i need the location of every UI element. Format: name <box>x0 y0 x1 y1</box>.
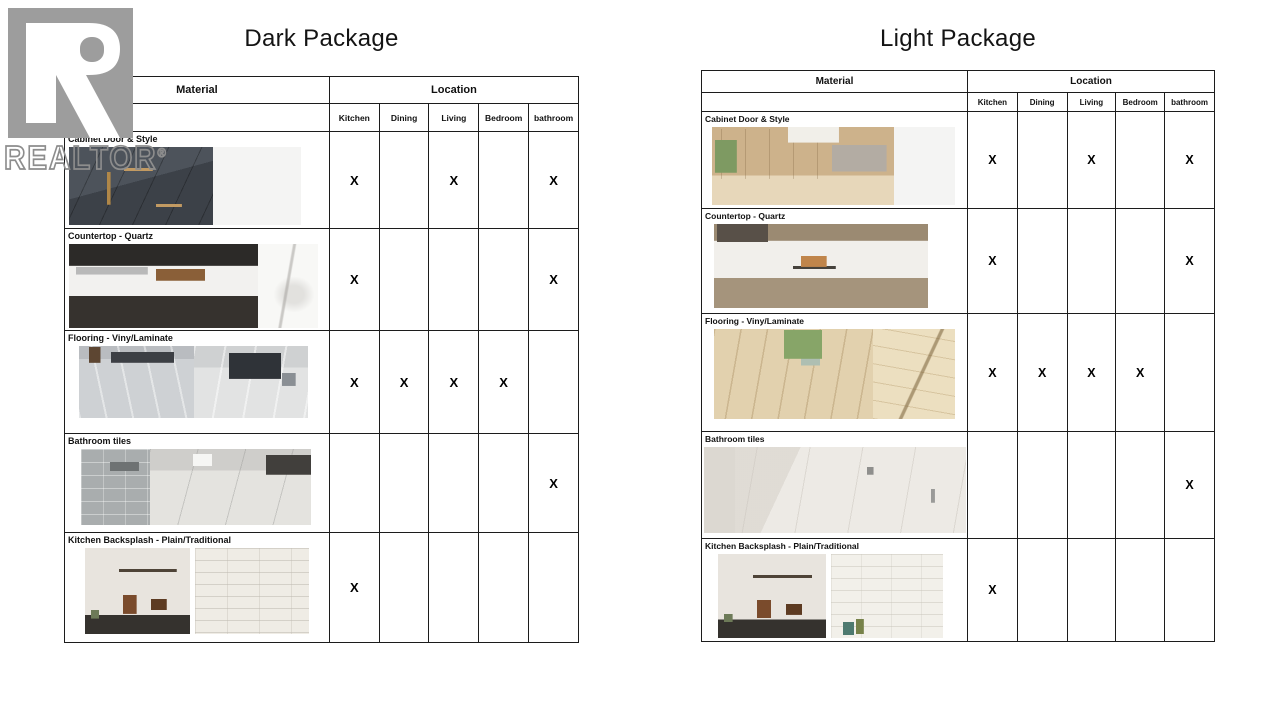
location-mark-cell: X <box>529 132 579 229</box>
material-row: Countertop - QuartzXX <box>65 229 579 331</box>
gray-shower-tile-photo <box>81 449 150 525</box>
location-mark-cell: X <box>967 539 1017 642</box>
material-cell: Countertop - Quartz <box>65 229 330 331</box>
location-mark-cell <box>1165 314 1215 432</box>
material-row: Kitchen Backsplash - Plain/TraditionalX <box>65 533 579 643</box>
location-column-living: Living <box>429 104 479 132</box>
location-mark-cell <box>479 434 529 533</box>
location-mark-cell <box>479 229 529 331</box>
package-title-light: Light Package <box>701 24 1215 54</box>
material-row: Cabinet Door & StyleXXX <box>702 112 1215 209</box>
location-mark-cell: X <box>967 112 1017 209</box>
package-table: MaterialLocationKitchenDiningLivingBedro… <box>701 70 1215 642</box>
material-photos <box>714 329 955 419</box>
location-mark-cell <box>967 432 1017 539</box>
material-cell: Cabinet Door & Style <box>702 112 968 209</box>
light-plank-floor-photo <box>714 329 873 419</box>
registered-symbol: ® <box>157 145 167 160</box>
location-mark-cell: X <box>1017 314 1067 432</box>
location-mark-cell <box>1017 432 1067 539</box>
white-panel-swatch-photo <box>213 147 301 225</box>
location-mark-cell <box>329 434 379 533</box>
light-quartz-island-photo <box>714 224 928 308</box>
location-mark-cell: X <box>379 331 429 434</box>
location-mark-cell: X <box>329 331 379 434</box>
location-mark-cell <box>379 229 429 331</box>
material-row: Bathroom tilesX <box>702 432 1215 539</box>
material-photos <box>704 447 966 533</box>
material-photos <box>718 554 947 638</box>
location-mark-cell <box>429 229 479 331</box>
material-label: Bathroom tiles <box>702 432 967 445</box>
location-mark-cell: X <box>967 314 1017 432</box>
material-cell: Kitchen Backsplash - Plain/Traditional <box>702 539 968 642</box>
material-row: Flooring - Viny/LaminateXXXX <box>65 331 579 434</box>
light-package-section: Light Package MaterialLocationKitchenDin… <box>701 24 1215 642</box>
location-mark-cell: X <box>429 132 479 229</box>
marble-swatch-photo <box>258 244 318 328</box>
location-column-bathroom: bathroom <box>529 104 579 132</box>
white-brick-tile-photo <box>831 554 943 638</box>
material-row: Flooring - Viny/LaminateXXXX <box>702 314 1215 432</box>
material-label: Bathroom tiles <box>65 434 329 447</box>
location-mark-cell: X <box>1165 432 1215 539</box>
material-row: Kitchen Backsplash - Plain/TraditionalX <box>702 539 1215 642</box>
location-column-living: Living <box>1067 93 1116 112</box>
light-wood-kitchen-photo <box>712 127 894 205</box>
material-cell: Bathroom tiles <box>65 434 330 533</box>
location-mark-cell: X <box>1067 112 1116 209</box>
material-label: Kitchen Backsplash - Plain/Traditional <box>702 539 967 552</box>
material-row: Bathroom tilesX <box>65 434 579 533</box>
material-row: Countertop - QuartzXX <box>702 209 1215 314</box>
location-mark-cell <box>529 533 579 643</box>
location-mark-cell <box>479 533 529 643</box>
material-label: Flooring - Viny/Laminate <box>702 314 967 327</box>
large-gray-tiles-photo <box>150 449 311 525</box>
location-mark-cell <box>1067 209 1116 314</box>
material-photos <box>85 548 313 634</box>
white-brick-tile-photo <box>195 548 309 634</box>
location-column-dining: Dining <box>379 104 429 132</box>
backsplash-kitchen-photo <box>85 548 190 634</box>
location-mark-cell <box>429 533 479 643</box>
location-mark-cell: X <box>529 229 579 331</box>
location-mark-cell: X <box>529 434 579 533</box>
light-bathroom-photo <box>704 447 966 533</box>
location-mark-cell <box>1116 209 1165 314</box>
location-mark-cell <box>479 132 529 229</box>
material-label: Countertop - Quartz <box>65 229 329 242</box>
dark-kitchen-quartz-counter-photo <box>69 244 258 328</box>
material-cell: Kitchen Backsplash - Plain/Traditional <box>65 533 330 643</box>
location-mark-cell <box>529 331 579 434</box>
material-header: Material <box>702 71 968 93</box>
location-mark-cell <box>1017 209 1067 314</box>
plank-swatch-photo <box>873 329 955 419</box>
location-column-bedroom: Bedroom <box>479 104 529 132</box>
location-mark-cell <box>379 434 429 533</box>
material-photos <box>79 346 308 418</box>
location-mark-cell <box>379 132 429 229</box>
realtor-wordmark: REALTOR® <box>4 141 168 174</box>
material-label: Cabinet Door & Style <box>702 112 967 125</box>
location-header: Location <box>329 77 578 104</box>
white-panel-swatch-photo <box>894 127 955 205</box>
location-column-kitchen: Kitchen <box>967 93 1017 112</box>
location-mark-cell: X <box>1165 209 1215 314</box>
material-photos <box>69 244 318 328</box>
material-cell: Countertop - Quartz <box>702 209 968 314</box>
realtor-r-icon <box>8 8 133 138</box>
location-column-bathroom: bathroom <box>1165 93 1215 112</box>
material-cell: Bathroom tiles <box>702 432 968 539</box>
material-label: Countertop - Quartz <box>702 209 967 222</box>
location-mark-cell: X <box>1116 314 1165 432</box>
location-mark-cell: X <box>329 229 379 331</box>
location-mark-cell: X <box>429 331 479 434</box>
location-mark-cell: X <box>479 331 529 434</box>
location-mark-cell <box>1017 112 1067 209</box>
location-mark-cell <box>1116 112 1165 209</box>
realtor-brand-text: REALTOR <box>4 139 157 176</box>
location-column-dining: Dining <box>1017 93 1067 112</box>
location-mark-cell: X <box>1067 314 1116 432</box>
location-mark-cell <box>379 533 429 643</box>
material-photos <box>81 449 311 525</box>
location-mark-cell: X <box>1165 112 1215 209</box>
location-mark-cell <box>1017 539 1067 642</box>
material-label: Kitchen Backsplash - Plain/Traditional <box>65 533 329 546</box>
location-mark-cell: X <box>329 132 379 229</box>
location-mark-cell: X <box>967 209 1017 314</box>
location-mark-cell <box>1165 539 1215 642</box>
material-cell: Flooring - Viny/Laminate <box>702 314 968 432</box>
location-mark-cell <box>1067 432 1116 539</box>
location-column-kitchen: Kitchen <box>329 104 379 132</box>
location-mark-cell <box>429 434 479 533</box>
material-cell: Flooring - Viny/Laminate <box>65 331 330 434</box>
material-photos <box>712 127 955 205</box>
gray-laminate-floor-photo <box>79 346 194 418</box>
material-label: Flooring - Viny/Laminate <box>65 331 329 344</box>
gray-laminate-room-photo <box>194 346 309 418</box>
material-photos <box>714 224 928 308</box>
location-column-bedroom: Bedroom <box>1116 93 1165 112</box>
realtor-watermark: REALTOR® <box>8 8 186 174</box>
location-mark-cell: X <box>329 533 379 643</box>
material-subheader-empty <box>702 93 968 112</box>
location-mark-cell <box>1116 432 1165 539</box>
location-header: Location <box>967 71 1214 93</box>
location-mark-cell <box>1116 539 1165 642</box>
backsplash-kitchen-photo <box>718 554 826 638</box>
location-mark-cell <box>1067 539 1116 642</box>
